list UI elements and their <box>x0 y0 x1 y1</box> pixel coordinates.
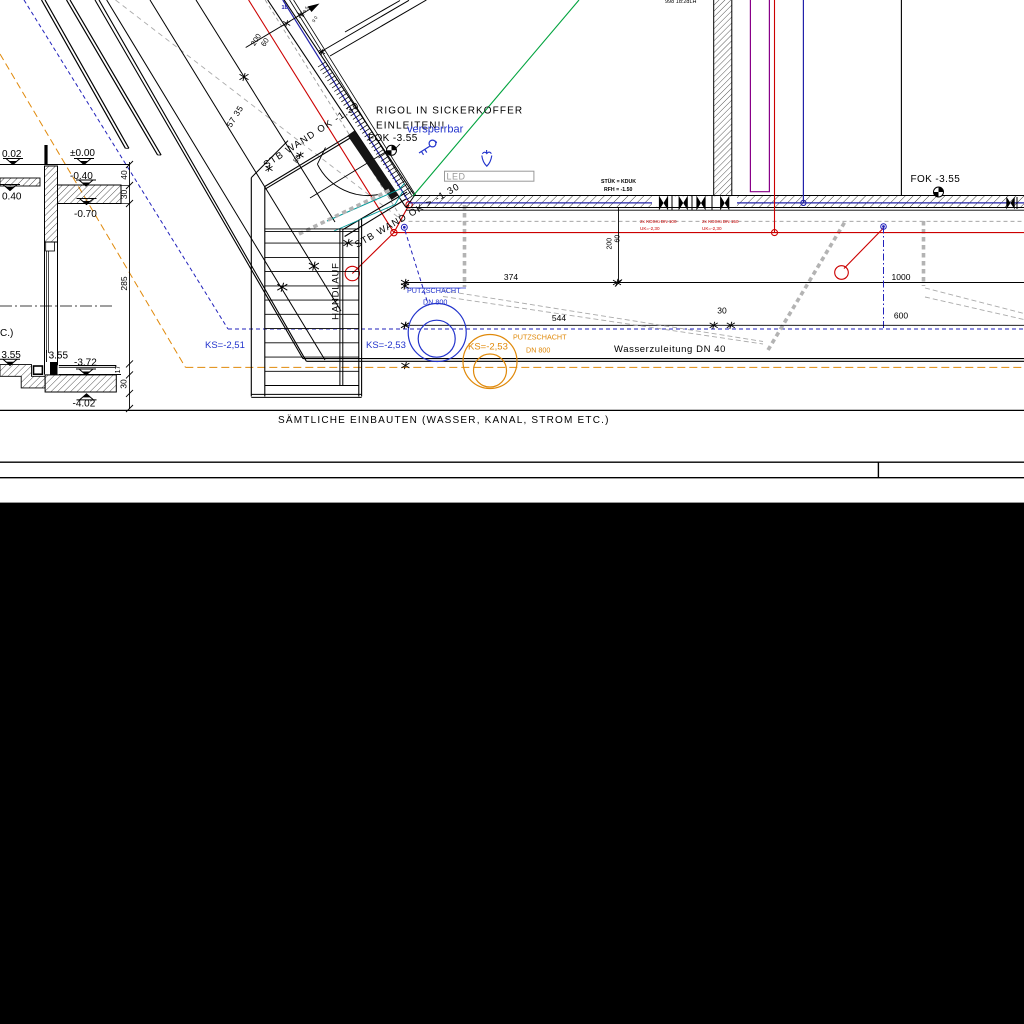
svg-text:600: 600 <box>894 311 908 321</box>
svg-text:30: 30 <box>119 379 129 389</box>
svg-text:RIGOL IN SICKERKOFFER: RIGOL IN SICKERKOFFER <box>376 106 523 117</box>
svg-text:998 1d:2dLH: 998 1d:2dLH <box>665 0 697 5</box>
svg-text:KS=-2,51: KS=-2,51 <box>205 340 245 351</box>
svg-text:RFH = -1.50: RFH = -1.50 <box>604 187 633 193</box>
svg-text:DN 800: DN 800 <box>526 346 550 355</box>
svg-text:30: 30 <box>119 190 129 200</box>
svg-text:DN 800: DN 800 <box>423 298 447 307</box>
svg-text:±0.00: ±0.00 <box>70 148 95 159</box>
svg-text:PUTZSCHACHT: PUTZSCHACHT <box>513 333 567 342</box>
svg-text:-0.70: -0.70 <box>74 209 97 220</box>
svg-text:0.40: 0.40 <box>2 192 22 203</box>
svg-text:KS=-2,53: KS=-2,53 <box>468 342 508 353</box>
svg-text:1000: 1000 <box>892 272 911 282</box>
svg-text:UK=-2,30: UK=-2,30 <box>640 226 660 231</box>
svg-text:HANDLAUF: HANDLAUF <box>331 262 342 320</box>
svg-text:374: 374 <box>504 272 518 282</box>
svg-text:30: 30 <box>717 306 727 316</box>
svg-text:LED: LED <box>447 172 466 182</box>
svg-text:STÜK = KDUK: STÜK = KDUK <box>601 178 636 185</box>
svg-text:2x KDSrü DN 150: 2x KDSrü DN 150 <box>702 219 739 224</box>
svg-text:KS=-2,53: KS=-2,53 <box>366 340 406 351</box>
svg-text:60: 60 <box>615 235 622 243</box>
svg-text:Wasserzuleitung DN 40: Wasserzuleitung DN 40 <box>614 344 726 355</box>
svg-text:285: 285 <box>119 276 129 290</box>
svg-text:3.55: 3.55 <box>49 351 69 362</box>
svg-text:17: 17 <box>115 366 122 374</box>
svg-text:C.): C.) <box>0 328 13 339</box>
svg-text:SÄMTLICHE EINBAUTEN (WASSER, K: SÄMTLICHE EINBAUTEN (WASSER, KANAL, STRO… <box>278 414 610 426</box>
svg-text:2x KDSrü DN 100: 2x KDSrü DN 100 <box>640 219 677 224</box>
svg-text:FOK -3.55: FOK -3.55 <box>911 174 961 185</box>
svg-text:UK=-2,30: UK=-2,30 <box>702 226 722 231</box>
svg-text:40: 40 <box>119 170 129 180</box>
svg-text:200: 200 <box>607 238 614 250</box>
svg-text:FOK -3.55: FOK -3.55 <box>368 133 418 144</box>
svg-text:PUTZSCHACHT: PUTZSCHACHT <box>407 286 461 295</box>
